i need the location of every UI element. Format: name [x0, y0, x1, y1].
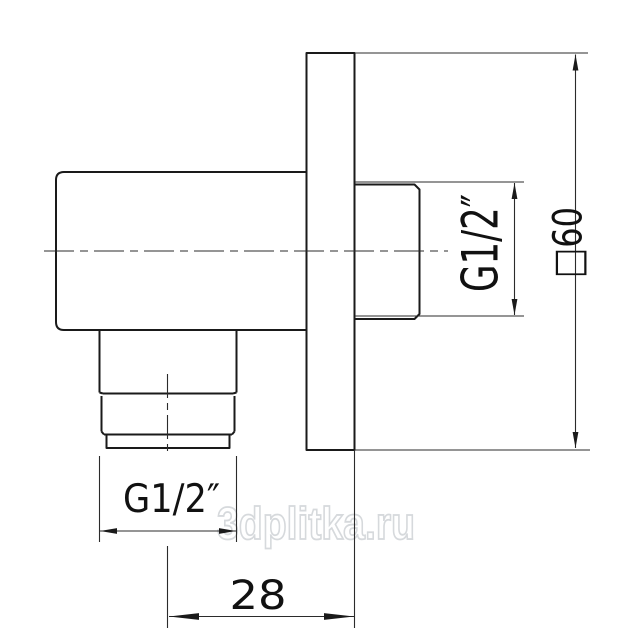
side-thread-port-outline: [355, 185, 420, 320]
watermark-text: 3dplitka.ru: [217, 498, 415, 549]
dimension-bottom-thread: G1/2″: [100, 456, 237, 542]
wall-offset-label: 28: [230, 573, 287, 619]
dimension-side-thread: G1/2″: [355, 182, 524, 316]
technical-drawing-canvas: 3dplitka.ru G1/2″: [0, 0, 631, 630]
side-thread-label: G1/2″: [452, 194, 510, 292]
bottom-thread-label: G1/2″: [123, 477, 220, 522]
plate-size-label: □60: [546, 207, 592, 278]
drawing-page: 3dplitka.ru G1/2″: [0, 0, 631, 630]
